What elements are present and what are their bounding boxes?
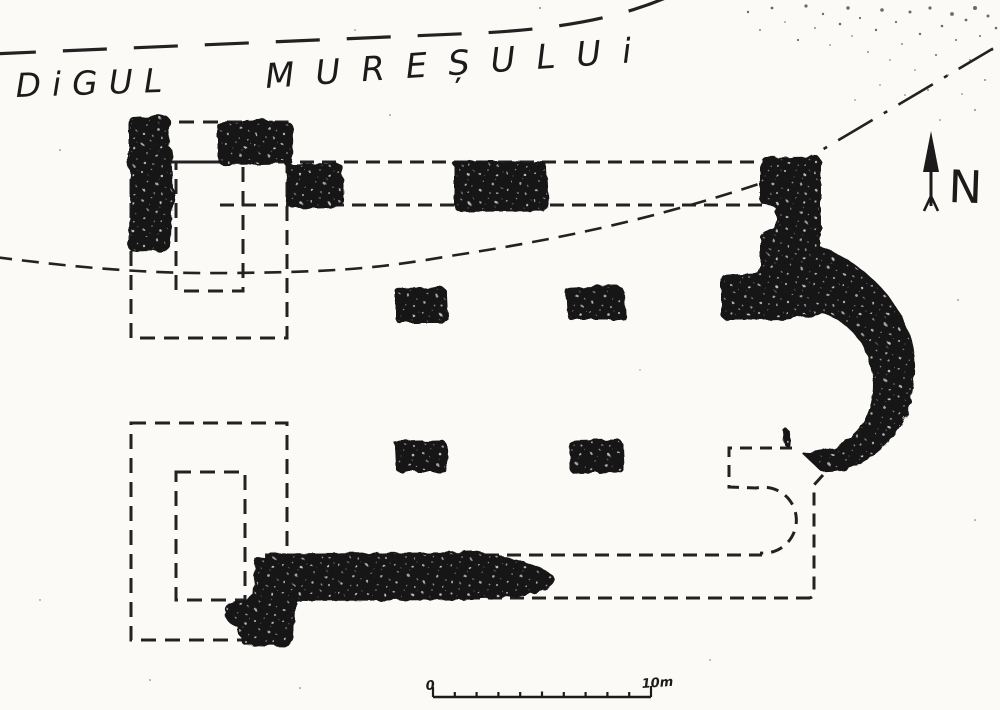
pillar-northeast (567, 287, 625, 319)
west-wall-fragment (128, 117, 174, 251)
scale-end-label: 10m (641, 675, 674, 692)
site-plan-canvas: DiGUL MUREȘULUi N 0 10m (0, 0, 1000, 710)
pillar-southeast (570, 440, 624, 473)
scale-zero-label: 0 (425, 678, 435, 694)
pillar-northwest (396, 288, 448, 322)
paper-background (0, 0, 1000, 710)
north-wall-fragment (454, 162, 548, 211)
plan-title-left: DiGUL (15, 61, 174, 105)
pillar-southwest (395, 441, 448, 471)
northwest-wall-fragment-lower (287, 164, 344, 207)
north-label: N (948, 160, 984, 214)
scanned-plan-page: DiGUL MUREȘULUi N 0 10m (0, 0, 1000, 710)
northwest-wall-fragment-upper (219, 120, 293, 164)
